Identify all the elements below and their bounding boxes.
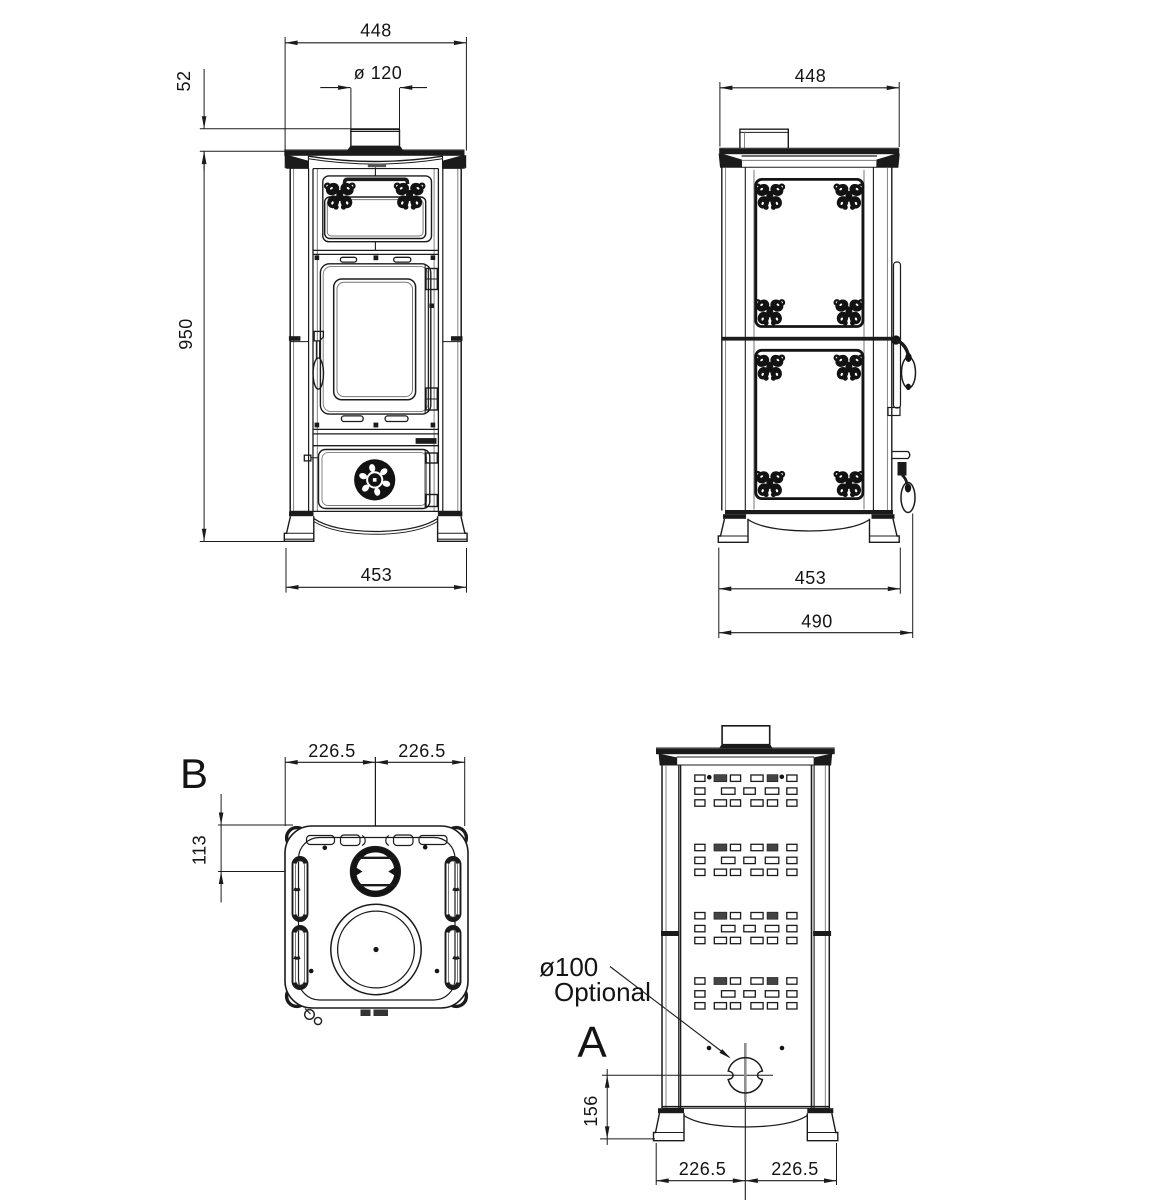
svg-text:226.5: 226.5 (308, 741, 356, 761)
svg-text:448: 448 (795, 66, 827, 86)
svg-text:453: 453 (361, 565, 393, 585)
svg-text:113: 113 (190, 835, 210, 865)
svg-text:226.5: 226.5 (398, 741, 446, 761)
svg-text:A: A (577, 1018, 607, 1067)
svg-text:453: 453 (795, 568, 827, 588)
svg-text:490: 490 (801, 612, 833, 632)
svg-text:52: 52 (174, 70, 194, 91)
svg-text:Optional: Optional (554, 977, 651, 1007)
svg-text:226.5: 226.5 (679, 1159, 727, 1179)
svg-text:156: 156 (581, 1095, 601, 1127)
svg-text:226.5: 226.5 (771, 1159, 819, 1179)
svg-text:ø 120: ø 120 (354, 63, 403, 83)
svg-text:448: 448 (360, 21, 392, 41)
svg-text:B: B (180, 750, 208, 797)
svg-text:950: 950 (176, 318, 196, 350)
